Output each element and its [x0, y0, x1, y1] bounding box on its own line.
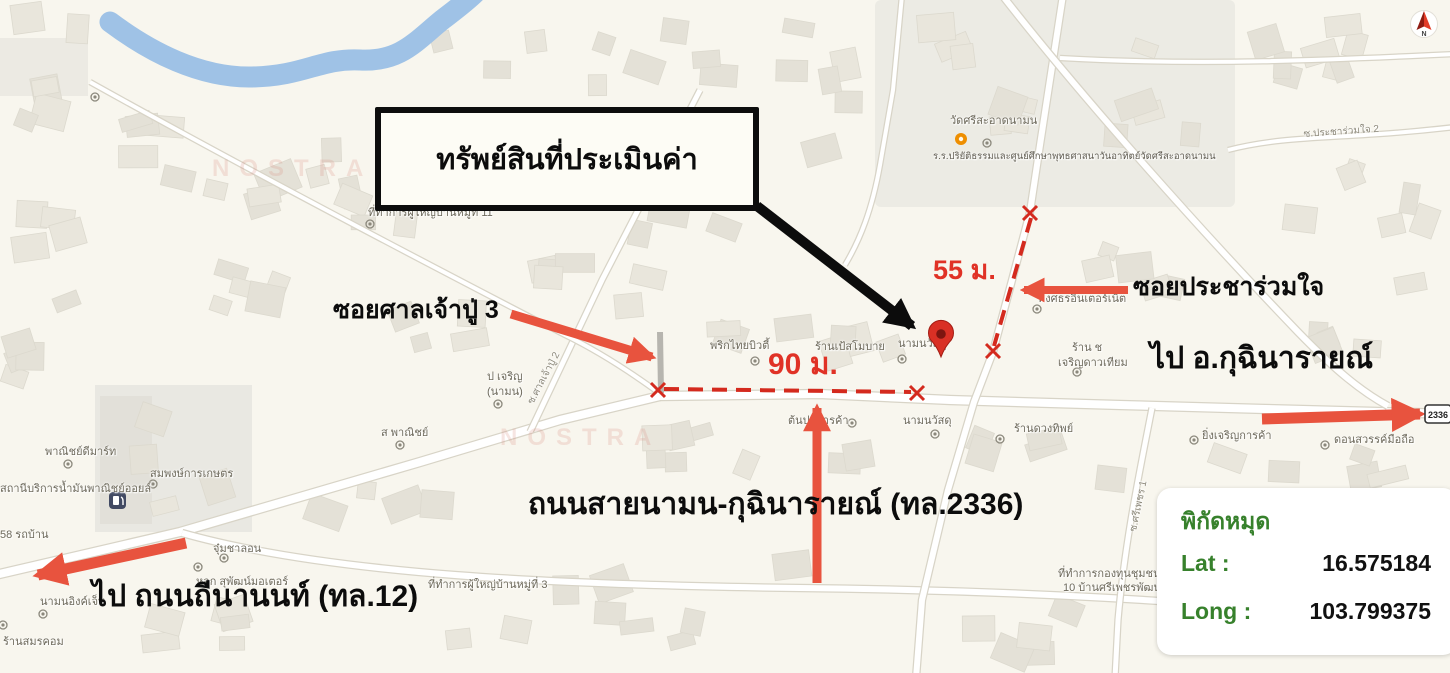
coordinate-panel: พิกัดหมุด Lat : 16.575184 Long : 103.799… — [1157, 488, 1450, 655]
map-label: พาณิชย์ดีมาร์ท — [45, 442, 116, 460]
map-label-wat: วัดศรีสะอาดนามน — [950, 111, 1037, 129]
map-label: สมพงษ์การเกษตร — [150, 464, 233, 482]
label-distance-55m: 55 ม. — [933, 256, 996, 284]
label-soi-pracha-ruam-jai: ซอยประชาร่วมใจ — [1133, 274, 1324, 300]
label-distance-90m: 90 ม. — [768, 349, 838, 381]
soi-san-chao-pu-road — [660, 332, 661, 393]
lat-value: 16.575184 — [1322, 550, 1431, 577]
map-watermark: NOSTRA — [212, 155, 373, 183]
map-label: ร้านสมรคอม — [3, 632, 64, 650]
map-label: พงศธรอินเตอร์เน็ต — [1038, 289, 1126, 307]
map-label: จุ๋มชาลอน — [213, 539, 261, 557]
map-label: นามนวัสดุ — [898, 334, 947, 352]
map-label: ต้นปอการค้า — [788, 411, 849, 429]
long-label: Long : — [1181, 598, 1251, 625]
label-road-2336: ถนนสายนามน-กุฉินารายณ์ (ทล.2336) — [528, 489, 1023, 521]
map-label: ส พาณิชย์ — [381, 423, 428, 441]
lat-label: Lat : — [1181, 550, 1230, 577]
map-label: ยิ่งเจริญการค้า — [1202, 426, 1272, 444]
coordinate-panel-title: พิกัดหมุด — [1181, 504, 1270, 540]
map-label: พริกไทยบิวตี้ — [710, 336, 769, 354]
map-canvas[interactable]: NOSTRA NOSTRA วัดศรีสะอาดนามน ร.ร.ปริยัต… — [0, 0, 1450, 673]
label-soi-san-chao-pu: ซอยศาลเจ้าปู่ 3 — [333, 297, 499, 323]
label-to-kuchinarai: ไป อ.กุฉินารายณ์ — [1150, 343, 1373, 375]
map-label: 58 รถบ้าน — [0, 525, 49, 543]
map-label: ร้านดวงทิพย์ — [1014, 419, 1073, 437]
map-label: 10 บ้านศรีเพชรพัฒนา — [1063, 578, 1167, 596]
map-label: สถานีบริการน้ำมันพาณิชย์ออยล์ — [0, 479, 151, 497]
map-label-school: ร.ร.ปริยัติธรรมและศูนย์ศึกษาพุทธศาสนาวัน… — [933, 149, 1216, 164]
map-label: ดอนสวรรค์มือถือ — [1334, 430, 1414, 448]
river — [110, 0, 476, 77]
long-value: 103.799375 — [1309, 598, 1431, 625]
map-label: ที่ทำการผู้ใหญ่บ้านหมู่ที่ 3 — [428, 575, 547, 593]
temple-icon — [955, 133, 967, 145]
map-label: เจริญดาวเทียม — [1058, 353, 1128, 371]
map-label: นามนวัสดุ — [903, 411, 952, 429]
map-label: (นามน) — [487, 382, 523, 400]
map-watermark: NOSTRA — [500, 424, 661, 452]
property-label-box: ทรัพย์สินที่ประเมินค่า — [375, 107, 759, 211]
label-to-thinanon: ไป ถนนถีนานนท์ (ทล.12) — [92, 581, 418, 613]
